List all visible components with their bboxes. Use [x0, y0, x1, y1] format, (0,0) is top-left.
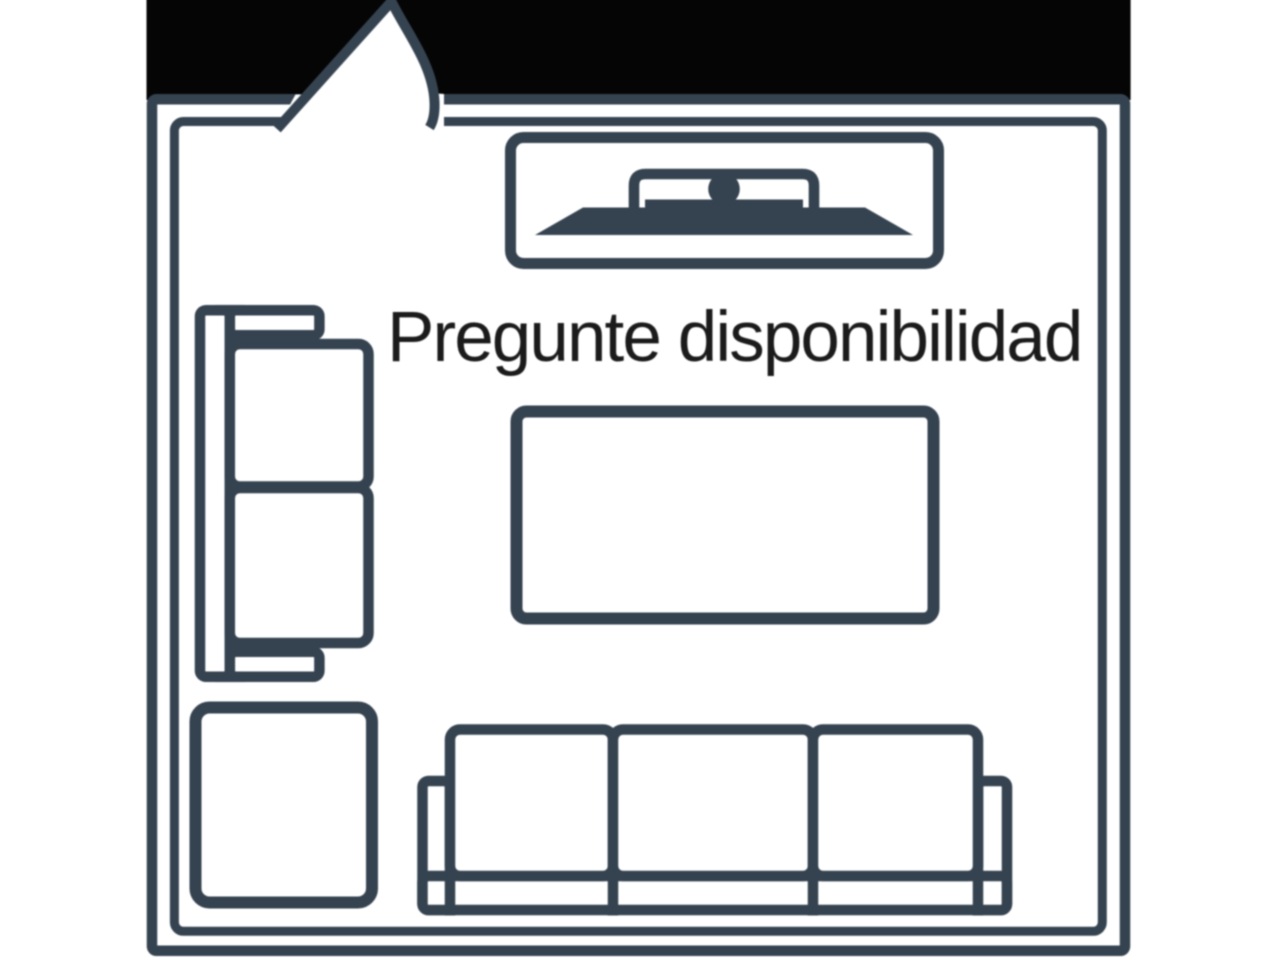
svg-text:Pregunte disponibilidad: Pregunte disponibilidad: [387, 298, 1081, 377]
